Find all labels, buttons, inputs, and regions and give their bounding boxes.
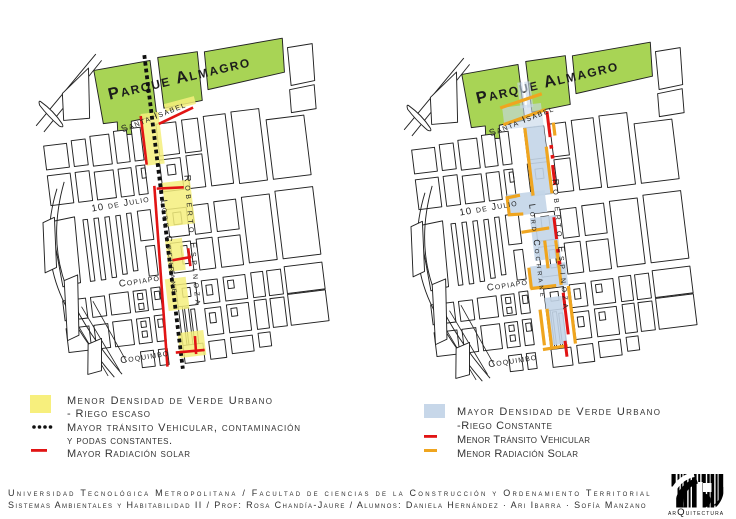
svg-text:Menor Tránsito Vehicular: Menor Tránsito Vehicular — [457, 434, 591, 446]
svg-text:Menor Densidad de Verde Urbano: Menor Densidad de Verde Urbano — [67, 395, 273, 407]
svg-text:Mayor tránsito Vehicular, cont: Mayor tránsito Vehicular, contaminación — [67, 422, 301, 434]
svg-text:- Riego escaso: - Riego escaso — [67, 408, 151, 420]
svg-text:Universidad Tecnológica Metrop: Universidad Tecnológica Metropolitana / … — [8, 488, 650, 498]
svg-text:-Riego Constante: -Riego Constante — [457, 420, 553, 432]
svg-text:y podas constantes.: y podas constantes. — [67, 435, 173, 447]
svg-text:Sistemas Ambientales y Habitab: Sistemas Ambientales y Habitabilidad II … — [8, 500, 646, 510]
svg-text:Mayor Radiación solar: Mayor Radiación solar — [67, 448, 191, 460]
svg-text:Mayor Densidad de Verde Urbano: Mayor Densidad de Verde Urbano — [457, 406, 661, 418]
svg-text:Menor Radiación Solar: Menor Radiación Solar — [457, 448, 579, 460]
